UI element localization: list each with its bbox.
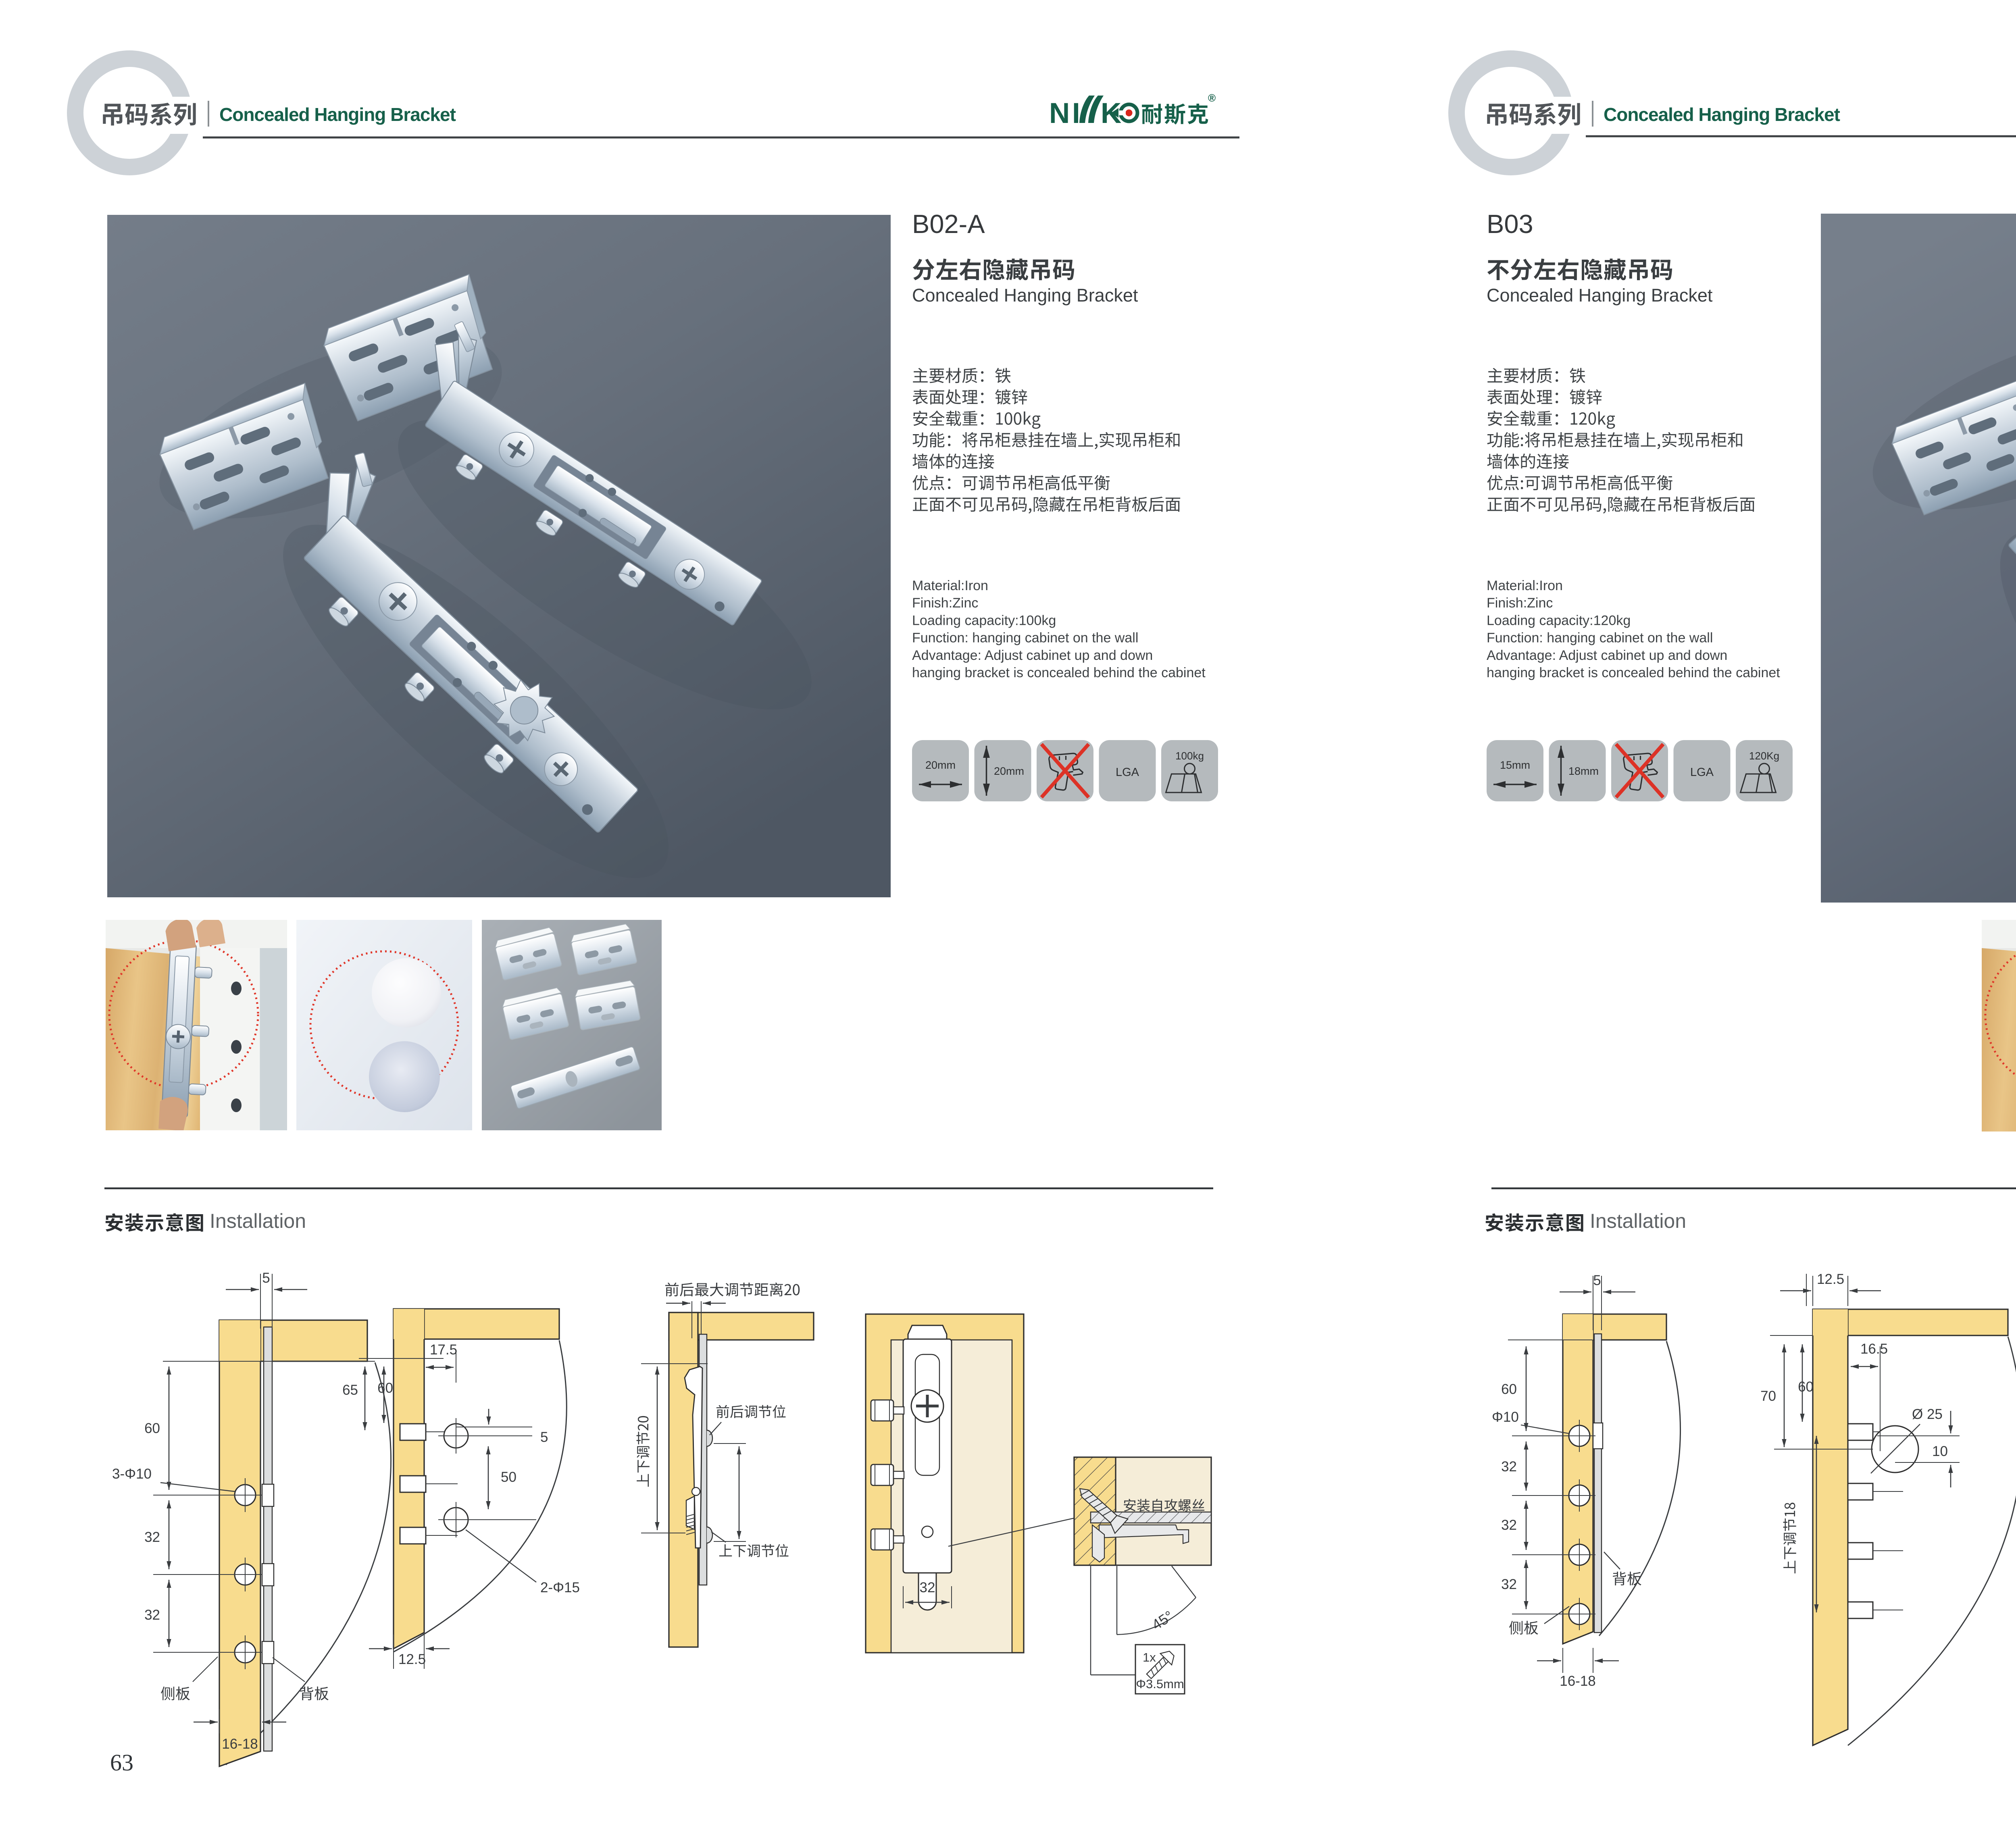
svg-text:20mm: 20mm: [994, 765, 1024, 777]
svg-text:15mm: 15mm: [1500, 759, 1530, 771]
svg-text:hanging bracket is concealed b: hanging bracket is concealed behind the …: [1487, 665, 1780, 680]
svg-text:65: 65: [342, 1382, 358, 1398]
svg-text:60: 60: [144, 1421, 160, 1436]
svg-text:Φ10: Φ10: [1492, 1409, 1519, 1425]
svg-text:Advantage: Adjust cabinet up a: Advantage: Adjust cabinet up and down: [912, 648, 1153, 663]
svg-text:18mm: 18mm: [1568, 765, 1599, 777]
svg-text:10: 10: [1932, 1443, 1948, 1459]
svg-text:B03: B03: [1487, 209, 1533, 239]
svg-text:16.5: 16.5: [1860, 1341, 1888, 1357]
svg-text:60: 60: [377, 1380, 393, 1396]
svg-text:50: 50: [501, 1469, 516, 1485]
svg-text:32: 32: [920, 1580, 935, 1595]
svg-text:3-Φ10: 3-Φ10: [112, 1466, 152, 1482]
svg-text:17.5: 17.5: [430, 1342, 457, 1358]
svg-text:16-18: 16-18: [222, 1736, 258, 1752]
svg-text:B02-A: B02-A: [912, 209, 985, 239]
svg-text:32: 32: [144, 1529, 160, 1545]
svg-text:5: 5: [540, 1429, 548, 1445]
svg-text:Ø 25: Ø 25: [1912, 1406, 1943, 1422]
svg-text:32: 32: [1501, 1517, 1517, 1533]
svg-text:N: N: [1049, 98, 1070, 129]
svg-text:16-18: 16-18: [1560, 1673, 1596, 1689]
svg-text:LGA: LGA: [1690, 766, 1714, 779]
svg-text:Φ3.5mm: Φ3.5mm: [1136, 1677, 1184, 1691]
svg-text:Concealed Hanging Bracket: Concealed Hanging Bracket: [1604, 104, 1840, 125]
svg-text:Material:Iron: Material:Iron: [912, 578, 988, 593]
svg-text:5: 5: [262, 1270, 270, 1286]
svg-text:Material:Iron: Material:Iron: [1487, 578, 1563, 593]
svg-text:5: 5: [1593, 1273, 1601, 1288]
svg-text:Loading capacity:120kg: Loading capacity:120kg: [1487, 613, 1631, 628]
svg-text:Installation: Installation: [1590, 1210, 1686, 1232]
svg-text:®: ®: [1208, 92, 1216, 104]
svg-text:Function: hanging cabinet on t: Function: hanging cabinet on the wall: [1487, 630, 1713, 646]
svg-text:60: 60: [1798, 1379, 1814, 1395]
svg-text:120Kg: 120Kg: [1749, 750, 1779, 762]
svg-text:Advantage: Adjust cabinet up a: Advantage: Adjust cabinet up and down: [1487, 648, 1727, 663]
svg-text:Finish:Zinc: Finish:Zinc: [1487, 595, 1553, 611]
svg-text:12.5: 12.5: [398, 1651, 426, 1667]
svg-text:60: 60: [1501, 1381, 1517, 1397]
svg-text:Concealed Hanging Bracket: Concealed Hanging Bracket: [1487, 285, 1713, 306]
svg-text:hanging bracket is concealed b: hanging bracket is concealed behind the …: [912, 665, 1206, 680]
svg-text:100kg: 100kg: [1175, 750, 1204, 762]
svg-text:Function: hanging cabinet on t: Function: hanging cabinet on the wall: [912, 630, 1138, 646]
svg-text:1x: 1x: [1143, 1650, 1156, 1664]
svg-text:2-Φ15: 2-Φ15: [540, 1580, 580, 1595]
svg-text:Concealed Hanging Bracket: Concealed Hanging Bracket: [219, 104, 456, 125]
svg-text:32: 32: [1501, 1459, 1517, 1475]
svg-text:LGA: LGA: [1116, 766, 1139, 779]
svg-text:I: I: [1072, 98, 1080, 129]
svg-text:Finish:Zinc: Finish:Zinc: [912, 595, 978, 611]
svg-text:32: 32: [144, 1607, 160, 1623]
svg-text:Concealed Hanging Bracket: Concealed Hanging Bracket: [912, 285, 1138, 306]
svg-text:12.5: 12.5: [1817, 1271, 1844, 1287]
svg-text:63: 63: [110, 1749, 133, 1776]
svg-text:70: 70: [1760, 1388, 1776, 1404]
svg-text:20mm: 20mm: [925, 759, 956, 771]
svg-text:Loading capacity:100kg: Loading capacity:100kg: [912, 613, 1056, 628]
svg-text:Installation: Installation: [210, 1210, 306, 1232]
svg-text:32: 32: [1501, 1577, 1517, 1592]
